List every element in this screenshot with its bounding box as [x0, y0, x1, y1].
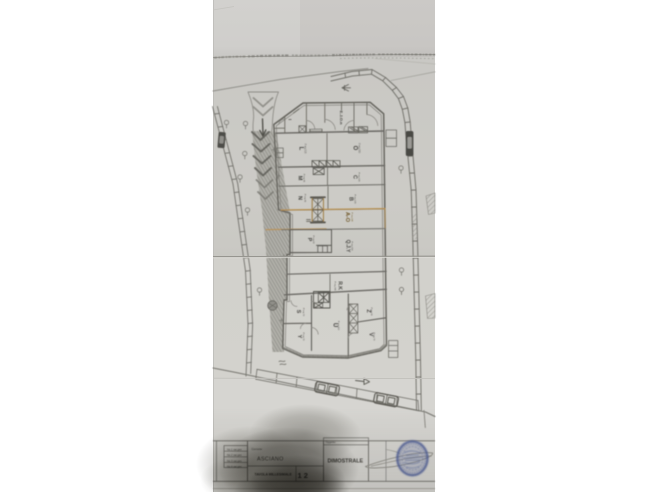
svg-text:E.J.O.n: E.J.O.n [339, 111, 344, 125]
svg-text:P mq 315: P mq 315 [304, 144, 306, 155]
svg-text:P mq 150: P mq 150 [351, 241, 353, 251]
svg-text:P mq 330: P mq 330 [358, 143, 360, 154]
svg-text:P mq 65: P mq 65 [370, 307, 372, 316]
svg-text:P mq 180: P mq 180 [334, 281, 336, 291]
svg-text:S: S [295, 310, 301, 314]
svg-text:P mq 110: P mq 110 [337, 321, 339, 331]
svg-text:P mq 70: P mq 70 [302, 332, 304, 341]
svg-text:L: L [298, 147, 304, 151]
svg-text:A-O: A-O [344, 212, 350, 223]
svg-text:M: M [297, 176, 303, 181]
svg-text:C: C [352, 175, 358, 179]
svg-text:P: P [306, 238, 312, 242]
svg-text:Q.J.Y: Q.J.Y [345, 240, 351, 253]
svg-text:I: I [288, 119, 293, 120]
svg-text:O: O [352, 146, 358, 151]
svg-text:P mq 140: P mq 140 [351, 212, 353, 222]
svg-text:Y: Y [296, 335, 302, 339]
svg-text:U: U [332, 323, 338, 327]
svg-text:N: N [297, 196, 303, 200]
svg-text:P mq 120: P mq 120 [354, 194, 356, 204]
svg-text:B: B [348, 197, 354, 201]
svg-text:P mq 120: P mq 120 [358, 172, 360, 182]
svg-text:P mq 70: P mq 70 [302, 308, 304, 317]
svg-text:P mq 60: P mq 60 [312, 235, 314, 244]
svg-text:P mq 95: P mq 95 [304, 194, 306, 203]
svg-text:P mq 95: P mq 95 [303, 174, 305, 183]
svg-text:R.K: R.K [337, 281, 343, 290]
svg-text:P mq 70: P mq 70 [373, 332, 375, 341]
